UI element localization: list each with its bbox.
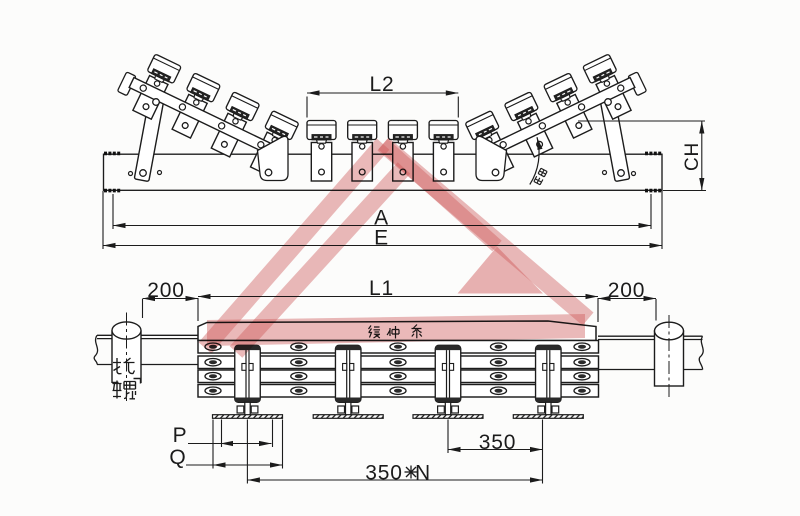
svg-text:200: 200 xyxy=(608,279,645,302)
svg-text:L2: L2 xyxy=(370,73,395,96)
svg-text:CH: CH xyxy=(682,142,703,171)
svg-text:E: E xyxy=(374,227,389,250)
svg-text:200: 200 xyxy=(147,279,184,302)
svg-text:350: 350 xyxy=(365,462,402,485)
svg-text:350: 350 xyxy=(479,431,516,454)
svg-text:L1: L1 xyxy=(369,277,394,300)
svg-text:Q: Q xyxy=(169,446,186,469)
svg-text:P: P xyxy=(173,424,188,447)
svg-text:N: N xyxy=(415,462,431,485)
